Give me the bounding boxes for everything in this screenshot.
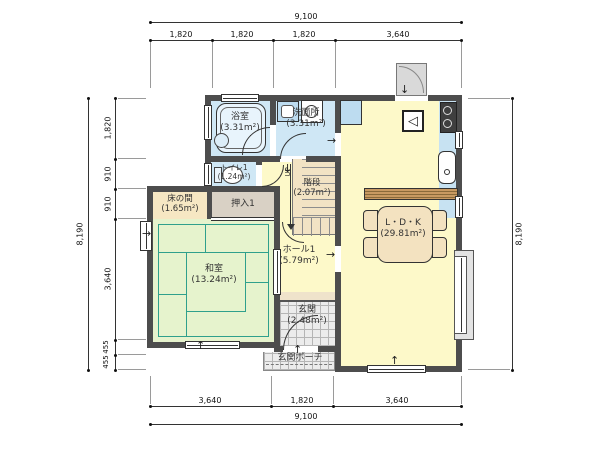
stove-burner xyxy=(443,106,452,115)
dining-chair xyxy=(432,210,447,231)
dim-bottom-seg-line xyxy=(150,406,462,407)
wall-bath-divider xyxy=(270,95,276,125)
wall-washitsu-left xyxy=(147,186,153,348)
dim-right-total: 8,190 xyxy=(515,223,524,246)
window-kitchen-right xyxy=(455,131,463,149)
dim-top-seg-3: 1,820 xyxy=(293,30,316,39)
hall-label: ホール1(5.79m²) xyxy=(279,245,318,267)
toilet-label: トイレ1(1.24m²) xyxy=(218,163,251,181)
ldk-label: L・D・K(29.81m²) xyxy=(380,218,425,240)
dining-chair xyxy=(432,237,447,258)
dim-bottom-seg-1: 3,640 xyxy=(199,396,222,405)
stairs-arrow-head xyxy=(287,224,295,230)
tatami-line xyxy=(186,312,187,337)
wall-genkan-bottom-1 xyxy=(274,346,283,352)
dim-bottom-seg-2: 1,820 xyxy=(291,396,314,405)
dim-top-total: 9,100 xyxy=(295,12,318,21)
dim-left-total-line xyxy=(88,98,89,371)
wall-hall-ldk-3 xyxy=(335,272,341,372)
wall-tokonoma-divider xyxy=(207,192,212,219)
window-dining-right xyxy=(455,196,463,218)
dim-top-seg-1: 1,820 xyxy=(170,30,193,39)
genkan-step-line xyxy=(280,300,335,302)
dim-left-total: 8,190 xyxy=(76,223,85,246)
door-arrow-kitchen: → xyxy=(327,135,336,146)
floor-plan: ◁ UP ↓ → → ↓ ↑ ↑ ↑ → 浴室(3.31m²) 洗面所(3.31… xyxy=(0,0,600,450)
dim-left-seg-5: 455 xyxy=(102,340,110,353)
closet-fusuma xyxy=(211,217,274,221)
window-bathroom-left xyxy=(204,105,212,140)
dining-chair xyxy=(363,237,378,258)
window-toilet-left xyxy=(204,163,212,186)
dim-left-seg-6: 455 xyxy=(102,355,110,368)
bathroom-label: 浴室(3.31m²) xyxy=(220,112,259,134)
kitchen-appliance-box: ◁ xyxy=(402,110,424,132)
kitchen-sink-icon xyxy=(438,151,456,184)
tatami-line xyxy=(158,294,186,295)
window-washitsu-bottom xyxy=(185,341,240,349)
wall-washitsu-right-2 xyxy=(274,295,280,352)
window-arrow-ldk: ↑ xyxy=(390,355,399,366)
window-arrow-left: → xyxy=(142,228,151,239)
tokonoma-label: 床の間(1.65m²) xyxy=(161,194,198,214)
refrigerator-icon xyxy=(340,100,362,125)
wall-toilet-right-2 xyxy=(256,188,262,192)
entrance-label: 玄関(2.48m²) xyxy=(287,305,326,327)
dim-right-total-line xyxy=(512,98,513,371)
washroom-label: 洗面所(3.31m²) xyxy=(286,108,325,130)
entry-arrow-back-door: ↓ xyxy=(400,84,409,95)
stairs-label: 階段(2.07m²) xyxy=(293,178,330,198)
stove-burner xyxy=(443,119,452,128)
wall-toilet-right-1 xyxy=(256,156,262,165)
sink-faucet xyxy=(444,169,450,175)
dim-bottom-total: 9,100 xyxy=(295,412,318,421)
dim-left-seg-3: 910 xyxy=(104,196,113,211)
dim-top-total-line xyxy=(150,22,462,23)
tatami-line xyxy=(205,224,206,252)
dim-left-seg-line xyxy=(115,98,116,371)
dim-bottom-seg-3: 3,640 xyxy=(386,396,409,405)
dim-left-seg-1: 1,820 xyxy=(104,117,113,140)
tatami-line xyxy=(246,282,269,283)
wall-hall-ldk-2 xyxy=(335,159,341,246)
door-arrow-hall-ldk: → xyxy=(326,249,335,260)
dim-bottom-total-line xyxy=(150,424,462,425)
bath-stool-icon xyxy=(214,133,229,148)
bay-window-inner xyxy=(454,256,467,334)
washitsu-label: 和室(13.24m²) xyxy=(191,264,236,286)
door-arrow-washroom: ↓ xyxy=(283,163,292,174)
dim-left-seg-4: 3,640 xyxy=(104,268,113,291)
wall-genkan-bottom-2 xyxy=(318,346,341,352)
dim-top-seg-2: 1,820 xyxy=(231,30,254,39)
dim-top-seg-line xyxy=(150,40,462,41)
wall-mid-h-1 xyxy=(205,156,280,162)
dining-chair xyxy=(363,210,378,231)
dim-top-seg-4: 3,640 xyxy=(387,30,410,39)
window-arrow-washitsu: ↑ xyxy=(196,340,205,351)
porch-dashed-edge xyxy=(266,364,332,365)
closet-label: 押入1 xyxy=(231,199,255,210)
window-bathroom-top xyxy=(221,94,259,102)
wall-washitsu-right-1 xyxy=(274,186,280,249)
porch-label: 玄関ポーチ xyxy=(277,353,322,364)
dim-left-seg-2: 910 xyxy=(104,166,113,181)
kitchen-counter-bar xyxy=(364,188,458,200)
fridge-triangle-icon: ◁ xyxy=(408,114,418,129)
